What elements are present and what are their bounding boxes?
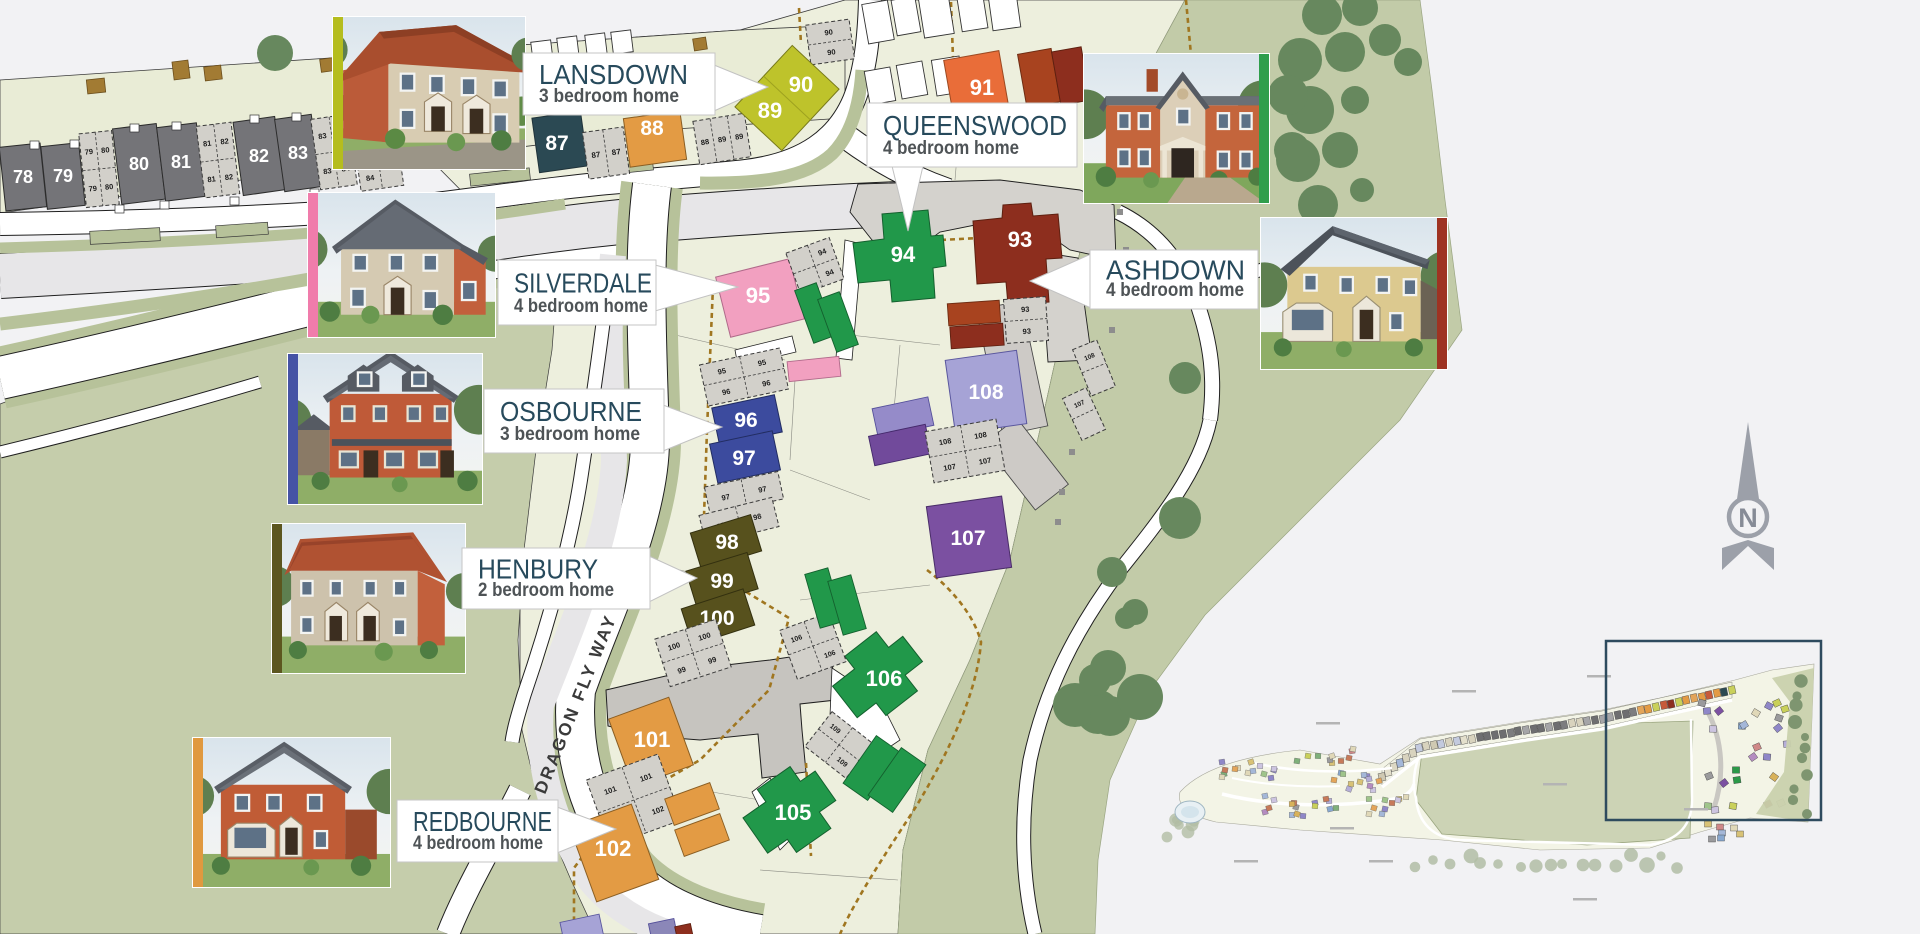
svg-text:102: 102: [595, 836, 632, 861]
svg-text:95: 95: [746, 283, 770, 308]
svg-text:98: 98: [715, 531, 739, 554]
svg-text:SILVERDALE: SILVERDALE: [514, 268, 652, 299]
svg-text:97: 97: [732, 447, 755, 470]
svg-text:87: 87: [545, 132, 568, 155]
svg-text:93: 93: [1022, 327, 1031, 337]
svg-text:94: 94: [891, 242, 916, 267]
svg-text:3 bedroom home: 3 bedroom home: [500, 424, 640, 445]
svg-text:93: 93: [1021, 305, 1030, 315]
svg-text:82: 82: [249, 146, 269, 166]
svg-text:83: 83: [318, 131, 328, 141]
svg-text:79: 79: [88, 184, 97, 194]
svg-text:101: 101: [634, 727, 671, 752]
svg-text:4 bedroom home: 4 bedroom home: [514, 296, 648, 317]
svg-text:90: 90: [824, 27, 834, 37]
svg-text:4 bedroom home: 4 bedroom home: [1106, 280, 1244, 301]
svg-text:QUEENSWOOD: QUEENSWOOD: [883, 110, 1067, 141]
svg-text:81: 81: [202, 139, 211, 149]
svg-text:88: 88: [640, 117, 664, 140]
svg-text:3 bedroom home: 3 bedroom home: [539, 86, 679, 107]
svg-text:105: 105: [775, 800, 812, 825]
svg-text:80: 80: [101, 145, 110, 155]
svg-text:83: 83: [323, 166, 333, 176]
svg-text:106: 106: [866, 666, 903, 691]
svg-text:99: 99: [710, 570, 733, 593]
svg-text:4 bedroom home: 4 bedroom home: [883, 138, 1019, 159]
svg-text:88: 88: [700, 137, 710, 147]
svg-text:79: 79: [84, 147, 93, 157]
svg-text:82: 82: [220, 136, 229, 146]
svg-text:87: 87: [591, 150, 602, 160]
svg-text:82: 82: [224, 172, 233, 182]
svg-text:108: 108: [968, 381, 1003, 404]
svg-text:93: 93: [1008, 227, 1032, 252]
svg-text:79: 79: [53, 166, 73, 186]
svg-text:89: 89: [717, 134, 727, 144]
svg-text:81: 81: [171, 152, 191, 172]
svg-text:78: 78: [13, 167, 33, 187]
svg-text:80: 80: [129, 154, 149, 174]
svg-text:OSBOURNE: OSBOURNE: [500, 396, 642, 427]
svg-text:83: 83: [288, 143, 308, 163]
svg-text:2 bedroom home: 2 bedroom home: [478, 580, 614, 601]
svg-text:4 bedroom home: 4 bedroom home: [413, 833, 543, 854]
svg-text:89: 89: [734, 132, 744, 142]
svg-text:96: 96: [734, 409, 757, 432]
svg-text:90: 90: [789, 72, 813, 97]
svg-text:80: 80: [105, 182, 114, 192]
svg-text:81: 81: [207, 174, 216, 184]
svg-text:91: 91: [970, 75, 994, 100]
svg-text:89: 89: [758, 98, 782, 123]
svg-text:87: 87: [611, 147, 622, 157]
svg-text:90: 90: [827, 47, 837, 57]
svg-text:107: 107: [950, 527, 985, 550]
svg-text:N: N: [1738, 503, 1758, 533]
